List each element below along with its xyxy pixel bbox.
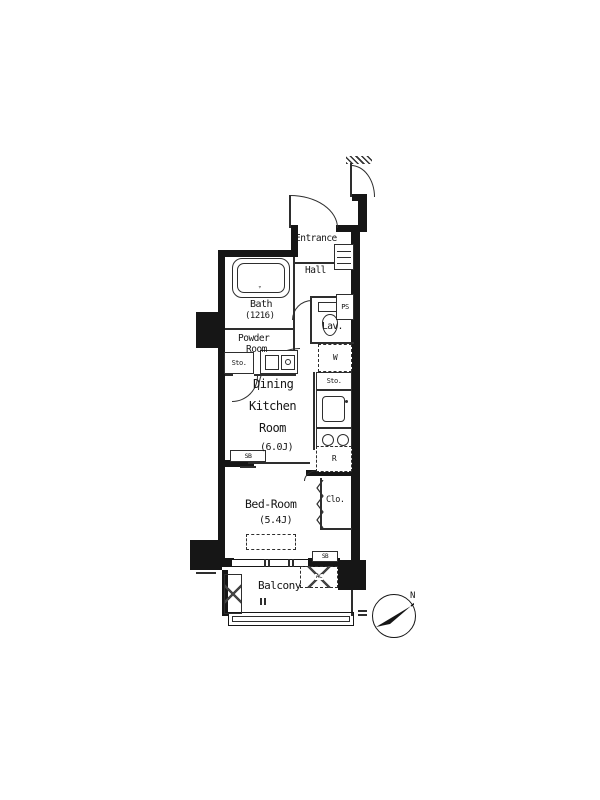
lavatory-label: Lav. [322,322,343,332]
window-sash-tick [292,559,294,567]
entrance-label: Entrance [295,234,337,244]
ac-label: AC [315,574,323,580]
balcony-drain-tick [260,598,262,605]
window-sash-tick [268,559,270,567]
compass-north-label: N [410,592,415,601]
wall-top-right-v [358,194,367,232]
shutter-box-upper-label: SB [245,453,252,460]
shutter-box-lower: SB [312,551,338,562]
shoe-box-icon [334,244,354,270]
washbasin-cabinet [265,355,279,370]
sink-basin [322,396,345,422]
kitchen-counter-edge [313,372,315,450]
closet-label: Clo. [326,496,344,505]
refrigerator-space: R [316,446,352,472]
shoe-box-shelf [337,257,351,258]
exterior-door-arc [351,165,375,197]
closet-bottom-edge [320,528,352,530]
storage-left-label: Sto. [232,360,247,367]
pillar-right-bottom [338,560,366,590]
washer-space: W [318,344,352,372]
kitchen-sink-icon [316,390,352,428]
hall-label: Hall [305,266,326,276]
stove-burner [322,434,334,446]
entrance-door-arc [290,195,338,228]
sink-faucet [345,400,348,403]
furniture-outline [246,534,296,550]
storage-right-label: Sto. [327,378,342,385]
compass-tick [358,610,367,612]
compass-tick [358,614,367,616]
dk-size-label: (6.0J) [260,443,293,453]
shoe-box-shelf [337,251,351,252]
closet-bifold-door [316,480,324,528]
wall-bath-top [218,250,298,257]
window-sash-tick [288,559,290,567]
bedroom-label: Bed-Room [245,499,296,511]
bedroom-window [232,559,308,567]
floor-plan: ▿ W Sto. R PS Sto. SB SB [0,0,600,800]
dk-label-2: Kitchen [249,400,296,412]
balcony-railing-inner [232,616,350,622]
dk-label-1: Dining [253,378,293,390]
powder-room-label-2: Room [246,345,267,355]
pipe-space-label: PS [341,304,348,311]
storage-right-box: Sto. [316,372,352,390]
partition-bath-hall [293,257,295,352]
bath-label: Bath [250,300,272,310]
pipe-space-box: PS [336,294,354,320]
wall-right [351,225,360,566]
window-sash-tick [264,559,266,567]
pillar-left [196,312,222,348]
bathtub-icon: ▿ [232,258,290,298]
shutter-box-lower-label: SB [322,554,328,560]
lavatory-door-arc [292,300,312,320]
sliding-door-rail [248,462,310,464]
bathtub-drain: ▿ [258,285,261,291]
exterior-tick [196,572,216,574]
sliding-door-leaf [240,466,256,468]
washbasin-faucet [285,359,291,365]
ac-unit-left [224,574,242,614]
partition-bath-powder [225,328,295,330]
refrigerator-label: R [332,455,336,463]
stove-burner [337,434,349,446]
balcony-drain-tick [264,598,266,605]
balcony-railing-outer [228,612,354,626]
bedroom-size-label: (5.4J) [259,516,292,526]
washer-label: W [333,354,337,362]
storage-left-box: Sto. [224,352,254,374]
bath-size-label: (1216) [245,312,275,321]
dk-label-3: Room [259,422,286,434]
powder-room-label-1: Powder [238,334,269,344]
shoe-box-shelf [337,263,351,264]
ac-unit-right: AC [300,566,338,588]
balcony-label: Balcony [258,580,301,591]
